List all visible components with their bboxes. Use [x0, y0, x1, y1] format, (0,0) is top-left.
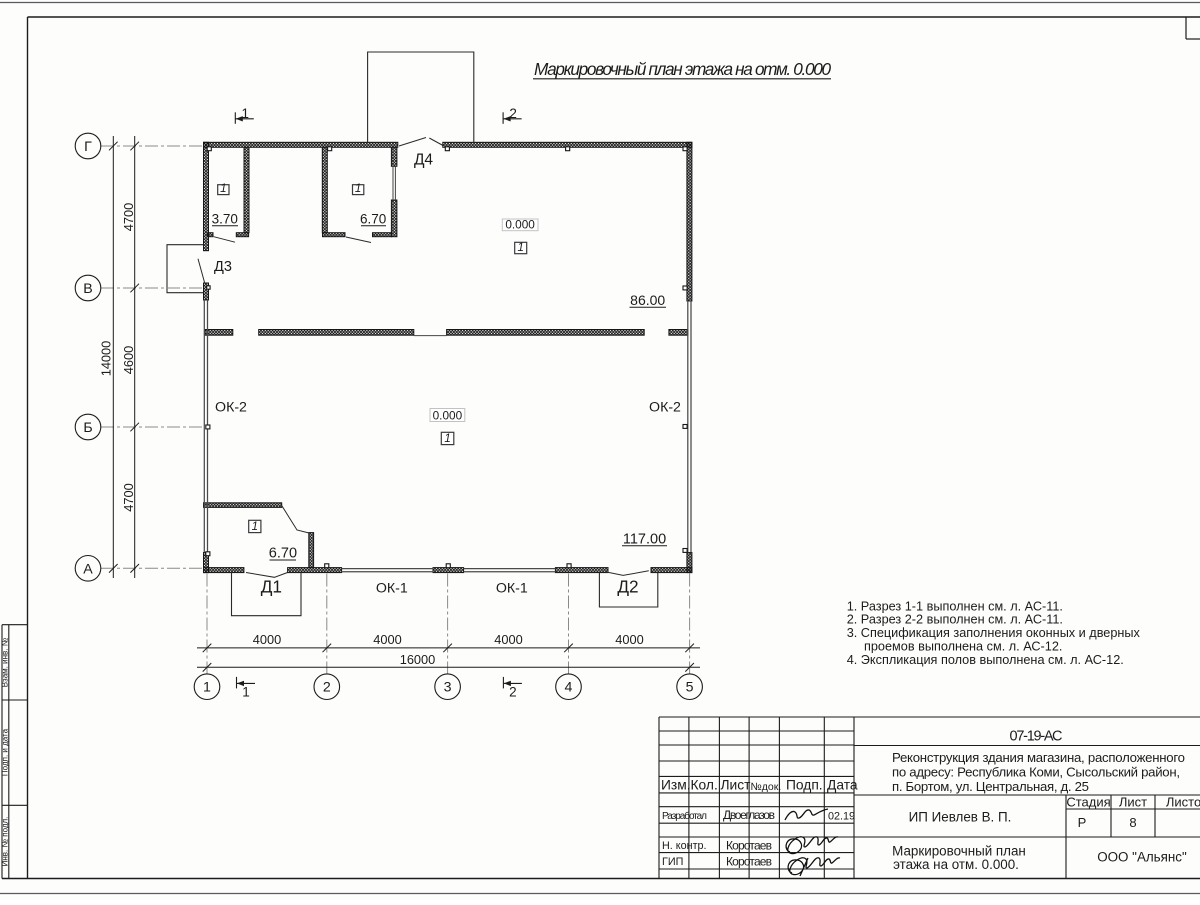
svg-text:А: А: [83, 561, 93, 577]
svg-text:этажа на отм. 0.000.: этажа на отм. 0.000.: [893, 857, 1019, 872]
svg-text:14000: 14000: [99, 341, 114, 377]
svg-text:Подп. и дата: Подп. и дата: [1, 728, 10, 776]
svg-text:В: В: [83, 281, 92, 297]
svg-text:2: 2: [509, 106, 517, 121]
svg-text:Подп.: Подп.: [786, 778, 823, 793]
svg-text:07-19-АС: 07-19-АС: [1010, 729, 1063, 745]
svg-text:86.00: 86.00: [630, 292, 665, 308]
svg-text:2: 2: [323, 680, 331, 696]
svg-text:4700: 4700: [121, 203, 136, 231]
svg-text:1: 1: [355, 183, 361, 195]
svg-text:Разработал: Разработал: [662, 810, 707, 822]
svg-text:Изм.: Изм.: [661, 778, 691, 793]
svg-text:0.000: 0.000: [505, 218, 535, 232]
svg-text:ОК-2: ОК-2: [215, 400, 247, 416]
svg-text:1: 1: [203, 680, 211, 696]
svg-text:Дата: Дата: [827, 778, 858, 793]
svg-text:1: 1: [444, 433, 450, 445]
svg-text:1: 1: [517, 242, 523, 254]
svg-text:1: 1: [252, 521, 258, 533]
svg-text:Маркировочный план этажа на от: Маркировочный план этажа на отм. 0.000: [534, 59, 831, 79]
svg-text:Коротаев: Коротаев: [726, 855, 772, 869]
svg-text:117.00: 117.00: [623, 532, 666, 548]
svg-text:Коротаев: Коротаев: [726, 839, 772, 853]
svg-text:1: 1: [242, 106, 250, 121]
svg-text:ОК-1: ОК-1: [496, 581, 528, 597]
svg-text:Взам. инв. №: Взам. инв. №: [1, 637, 10, 687]
svg-text:4000: 4000: [494, 632, 522, 647]
svg-text:ИП Иевлев В. П.: ИП Иевлев В. П.: [909, 810, 1012, 825]
svg-text:№док.: №док.: [751, 781, 782, 793]
svg-text:ГИП: ГИП: [662, 856, 683, 868]
svg-text:ОК-2: ОК-2: [649, 400, 681, 416]
svg-text:4000: 4000: [373, 632, 401, 647]
svg-text:Г: Г: [84, 139, 92, 155]
svg-text:Стадия: Стадия: [1066, 795, 1110, 810]
svg-text:8: 8: [1129, 815, 1136, 830]
svg-text:02.19: 02.19: [828, 811, 855, 823]
svg-text:16000: 16000: [400, 652, 436, 667]
svg-text:6.70: 6.70: [360, 212, 386, 227]
svg-text:по адресу: Республика Коми, Сы: по адресу: Республика Коми, Сысольский р…: [892, 765, 1180, 780]
svg-text:3. Спецификация заполнения око: 3. Спецификация заполнения оконных и две…: [847, 626, 1141, 640]
svg-text:Д1: Д1: [261, 577, 282, 597]
svg-text:4: 4: [565, 680, 573, 696]
svg-text:Реконструкция здания магазина,: Реконструкция здания магазина, расположе…: [892, 750, 1185, 765]
svg-text:проемов выполнена см. л. АС-12: проемов выполнена см. л. АС-12.: [864, 640, 1062, 654]
svg-text:Д3: Д3: [214, 259, 232, 275]
svg-text:1. Разрез 1-1 выполнен см. л.: 1. Разрез 1-1 выполнен см. л. АС-11.: [847, 599, 1063, 613]
svg-text:4. Экспликация полов выполнена: 4. Экспликация полов выполнена см. л. АС…: [847, 653, 1124, 667]
svg-text:3: 3: [444, 680, 452, 696]
svg-text:4000: 4000: [615, 632, 643, 647]
svg-text:6.70: 6.70: [269, 546, 297, 562]
svg-text:Двоеглазов: Двоеглазов: [723, 808, 775, 822]
svg-text:Н. контр.: Н. контр.: [662, 840, 707, 852]
svg-text:Листов: Листов: [1166, 795, 1200, 810]
svg-text:ОК-1: ОК-1: [376, 581, 408, 597]
svg-text:Инв. № подл.: Инв. № подл.: [1, 817, 10, 867]
svg-text:Кол.: Кол.: [691, 778, 718, 793]
svg-text:Б: Б: [83, 420, 92, 436]
svg-text:п. Бортом, ул. Центральная, д.: п. Бортом, ул. Центральная, д. 25: [892, 779, 1089, 794]
svg-text:2: 2: [509, 684, 517, 699]
svg-text:0.000: 0.000: [433, 408, 463, 422]
svg-text:1: 1: [220, 183, 226, 195]
svg-text:2. Разрез 2-2 выполнен см. л.: 2. Разрез 2-2 выполнен см. л. АС-11.: [847, 613, 1063, 627]
svg-text:3.70: 3.70: [212, 212, 238, 227]
svg-text:ООО "Альянс": ООО "Альянс": [1097, 850, 1187, 865]
svg-text:5: 5: [686, 680, 694, 696]
svg-text:4000: 4000: [253, 632, 281, 647]
svg-text:Д2: Д2: [617, 577, 638, 597]
svg-text:4600: 4600: [121, 346, 136, 374]
svg-text:Р: Р: [1078, 815, 1087, 830]
svg-text:Д4: Д4: [414, 152, 433, 169]
svg-text:1: 1: [242, 684, 250, 699]
svg-text:Лист: Лист: [1119, 795, 1147, 810]
svg-text:4700: 4700: [121, 483, 136, 511]
svg-text:Лист: Лист: [721, 778, 752, 793]
